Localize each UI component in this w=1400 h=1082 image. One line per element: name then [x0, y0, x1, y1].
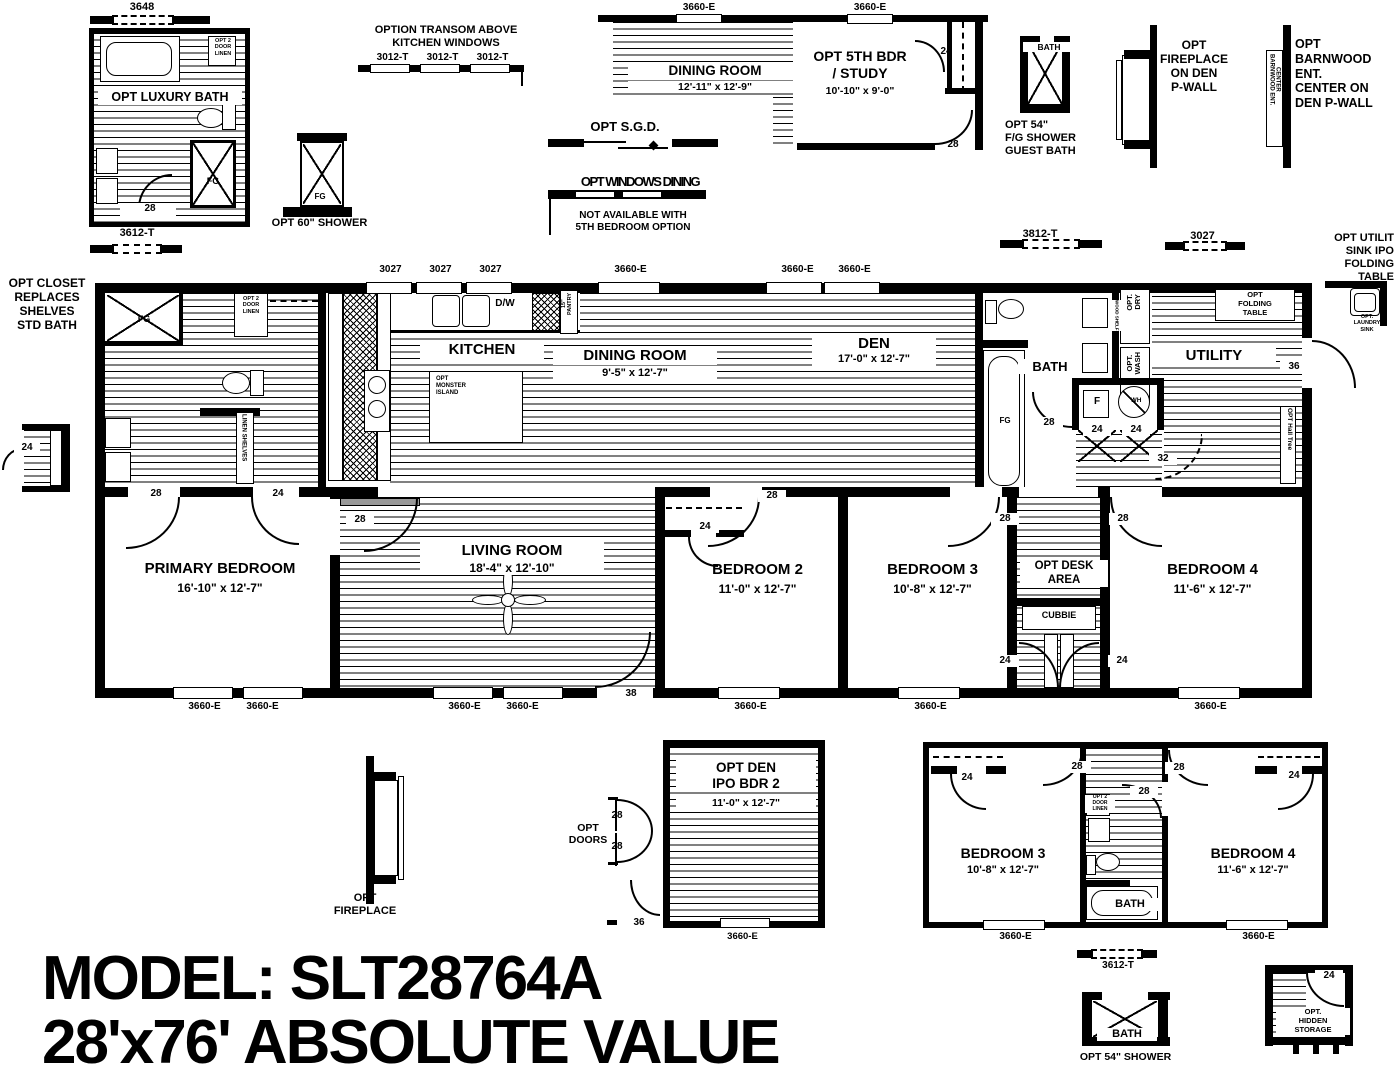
door-28-optden-2: 28	[605, 841, 629, 853]
opt-fireplace-label: OPT FIREPLACE	[315, 892, 415, 918]
opt-closet-title: OPT CLOSET REPLACES SHELVES STD BATH	[2, 276, 92, 333]
shower-wall	[1020, 104, 1070, 113]
sgd-label: OPT S.G.D.	[560, 119, 690, 134]
dim-3660e-dining: 3660-E	[598, 264, 663, 276]
closet-wall	[1157, 378, 1164, 430]
sink	[96, 148, 118, 174]
bedroom2-dims: 11'-0" x 12'-7"	[680, 582, 835, 596]
dim-3612t-bottom: 3612-T	[1078, 960, 1158, 972]
door-24-cubbie-l: 24	[991, 655, 1019, 667]
wall	[598, 15, 988, 22]
window	[983, 920, 1045, 930]
door-arc	[251, 497, 299, 545]
dim-bar	[1077, 950, 1091, 958]
leg	[1333, 1045, 1339, 1054]
barnwood-vert-label: BARNWOOD ENT. CENTER	[1268, 54, 1281, 105]
wood-shelf-vert: WOOD SHELF	[1112, 300, 1121, 331]
door-arc	[126, 497, 180, 549]
kitchen-label: KITCHEN	[420, 341, 544, 359]
opt-54-shower-label: OPT 54" SHOWER	[1068, 1051, 1183, 1063]
closet-rod	[962, 22, 966, 92]
bedroom4-dims: 11'-6" x 12'-7"	[1135, 582, 1290, 596]
window	[466, 282, 512, 294]
island-label: OPT MONSTER ISLAND	[436, 376, 490, 397]
closet-24-bed2: 24	[691, 521, 719, 533]
alt-bed3-label: BEDROOM 3	[923, 845, 1083, 862]
fireplace-bracket	[374, 772, 396, 781]
door-gap	[1110, 487, 1162, 497]
wall	[1017, 598, 1100, 606]
interior-wall	[1007, 497, 1017, 698]
wall	[983, 340, 1028, 348]
door-24-cubbie-r: 24	[1108, 655, 1136, 667]
furnace-label: F	[1085, 396, 1109, 408]
den-dims: 17'-0" x 12'-7"	[812, 353, 936, 366]
pantry	[532, 293, 560, 331]
door-28-bed2: 28	[758, 490, 786, 502]
transom-window-symbol	[112, 15, 174, 25]
alt-bath-label: BATH	[1100, 898, 1160, 911]
shower-wall	[283, 207, 352, 217]
win-3660e-pb2: 3660-E	[230, 701, 295, 713]
door-arc	[630, 880, 660, 916]
dim-3027-k1: 3027	[368, 264, 413, 276]
closet-rod	[666, 507, 742, 509]
door-24-hidden: 24	[1315, 970, 1343, 982]
closet-rod	[270, 300, 318, 302]
sgd-bar	[548, 139, 584, 147]
dim-3660e-d1: 3660-E	[664, 2, 734, 14]
win-3660e-optden: 3660-E	[710, 931, 775, 942]
dim-bar	[1000, 240, 1022, 248]
wall	[975, 20, 983, 147]
window	[847, 14, 893, 24]
wardrobe-shelf	[328, 293, 343, 481]
cubbie-label: CUBBIE	[1024, 610, 1094, 621]
door-24-bdr5: 24	[934, 46, 958, 58]
linen-shelves-vert: LINEN SHELVES	[238, 414, 248, 461]
dim-3012t-1: 3012-T	[365, 52, 420, 64]
alt-win-3660e-l: 3660-E	[983, 931, 1048, 943]
bdr5-label: OPT 5TH BDR / STUDY	[790, 48, 930, 81]
primary-bedroom-label: PRIMARY BEDROOM	[125, 560, 315, 578]
dining-opt-floor	[773, 97, 793, 147]
fireplace-den-label: OPT FIREPLACE ON DEN P-WALL	[1148, 38, 1240, 95]
utility-sink-title: OPT UTILIT SINK IPO FOLDING TABLE	[1308, 232, 1394, 284]
p-wall	[366, 756, 374, 904]
door-24-pbath: 24	[264, 488, 292, 500]
dim-bar	[162, 245, 182, 253]
closet-wall	[931, 766, 957, 774]
window	[470, 64, 510, 73]
hidden-storage-label: OPT. HIDDEN STORAGE	[1276, 1008, 1350, 1035]
door-24-util-2: 24	[1122, 424, 1150, 436]
closet-rod	[1258, 756, 1320, 758]
closet-shelf	[50, 430, 62, 486]
sgd-line	[584, 141, 626, 143]
win-3660e-b2: 3660-E	[718, 701, 783, 713]
window	[898, 687, 960, 699]
win-3660e-b4: 3660-E	[1178, 701, 1243, 713]
window	[718, 687, 780, 699]
opt-den-dims: 11'-0" x 12'-7"	[676, 797, 816, 809]
sink	[105, 418, 131, 448]
guest-bath-label: BATH	[1023, 42, 1075, 52]
door-gap	[710, 487, 762, 497]
interior-wall	[838, 497, 848, 698]
shower-wall	[1082, 992, 1102, 1000]
door-28-pbath: 28	[142, 488, 170, 500]
door-28-optden-1: 28	[605, 810, 629, 822]
sgd-bar	[672, 139, 718, 147]
door-38-living: 38	[617, 688, 645, 700]
model-title-line1: MODEL: SLT28764A	[42, 948, 601, 1010]
toilet-tank	[250, 370, 264, 396]
window	[575, 191, 615, 198]
window	[416, 282, 462, 294]
bdr5-dims: 10'-10" x 9'-0"	[790, 85, 930, 97]
sink	[1082, 343, 1108, 373]
dim-3812t: 3812-T	[1000, 228, 1080, 241]
laundry-sink-label: OPT. LAUNDRY SINK	[1342, 314, 1392, 333]
opt-luxury-bath-label: OPT LUXURY BATH	[98, 90, 242, 105]
living-room-dims: 18'-4" x 12'-10"	[420, 561, 604, 575]
closet-wall	[62, 424, 70, 492]
window	[433, 687, 493, 699]
alt-bed4-dims: 11'-6" x 12'-7"	[1173, 864, 1333, 877]
toilet-bowl	[222, 372, 250, 394]
dim-3027-k3: 3027	[468, 264, 513, 276]
interior-wall	[975, 293, 983, 493]
toilet-tank	[1086, 855, 1096, 875]
sink	[1088, 818, 1110, 842]
dim-3660e-d2: 3660-E	[835, 2, 905, 14]
fan-blade	[503, 603, 513, 635]
sink	[1082, 298, 1108, 328]
door-tick	[608, 862, 618, 865]
dim-bar	[1080, 240, 1102, 248]
guest-shower-label: OPT 54" F/G SHOWER GUEST BATH	[1005, 119, 1087, 158]
toilet-bowl	[1096, 853, 1120, 871]
alt-door28-r: 28	[1165, 762, 1193, 774]
door-28-bed4: 28	[1109, 513, 1137, 525]
closet-rod	[933, 756, 1003, 758]
fireplace-bracket	[1124, 140, 1150, 149]
burner	[368, 400, 386, 418]
leg	[1293, 1045, 1299, 1054]
dim-bar	[1143, 950, 1157, 958]
bedroom3-dims: 10'-8" x 12'-7"	[855, 582, 1010, 596]
alt-bed3-dims: 10'-8" x 12'-7"	[923, 864, 1083, 877]
dining-dims: 9'-5" x 12'-7"	[553, 367, 717, 380]
den-label: DEN	[812, 335, 936, 353]
dim-bar	[174, 16, 210, 24]
window	[173, 687, 233, 699]
fg-60-shower-label: FG	[305, 192, 335, 201]
door-gap	[950, 487, 1002, 497]
floorplan-canvas: MODEL: SLT28764A 28'x76' ABSOLUTE VALUE …	[0, 0, 1400, 1082]
alt-linen-label: OPT 2 DOOR LINEN	[1085, 795, 1115, 813]
burner	[368, 376, 386, 394]
door-36-optden: 36	[627, 917, 651, 929]
window	[1226, 920, 1288, 930]
dim-bar	[1165, 242, 1183, 250]
alt-closet24-l: 24	[955, 772, 979, 784]
door-24-util-1: 24	[1083, 424, 1111, 436]
dim-3660e-den1: 3660-E	[765, 264, 830, 276]
alt-door28-bath: 28	[1130, 786, 1158, 798]
door-gap	[1019, 487, 1098, 497]
wall-tick	[549, 199, 551, 235]
door-tick	[607, 920, 617, 925]
primary-bedroom-dims: 16'-10" x 12'-7"	[125, 581, 315, 595]
leg	[1313, 1045, 1319, 1054]
bedroom2-label: BEDROOM 2	[680, 561, 835, 579]
bath-label: BATH	[1018, 359, 1082, 374]
alt-win-3660e-r: 3660-E	[1226, 931, 1291, 943]
window	[1178, 687, 1240, 699]
fireplace-body	[374, 780, 398, 876]
closet-wall	[945, 88, 975, 94]
alt-door28-l: 28	[1063, 761, 1091, 773]
luxury-linen-label: OPT 2 DOOR LINEN	[210, 38, 236, 57]
door-32: 32	[1149, 453, 1177, 465]
win-3660e-lr1: 3660-E	[432, 701, 497, 713]
window	[243, 687, 303, 699]
door-28-luxury: 28	[136, 203, 164, 215]
wall	[1265, 965, 1273, 1046]
toilet-tank	[222, 104, 236, 130]
door-28-living-entry: 28	[346, 514, 374, 526]
door-24-closet-detail: 24	[14, 442, 40, 454]
closet-wall	[1072, 378, 1164, 385]
closet-wall	[1072, 378, 1079, 430]
alt-bed4-label: BEDROOM 4	[1173, 845, 1333, 862]
dining-label: DINING ROOM	[553, 347, 717, 365]
bathtub-inner	[106, 42, 172, 76]
dim-3612t-left: 3612-T	[97, 227, 177, 240]
dim-bar	[1227, 242, 1245, 250]
kitchen-sink	[462, 295, 490, 327]
bedroom4-label: BEDROOM 4	[1135, 561, 1290, 579]
fireplace-face	[1116, 60, 1122, 140]
dining-opt-label: DINING ROOM	[628, 63, 802, 79]
window	[503, 687, 563, 699]
dim-bar	[90, 16, 112, 24]
door-gap	[1162, 782, 1168, 816]
window	[420, 64, 460, 73]
opt-60-shower-label: OPT 60" SHOWER	[262, 217, 377, 230]
barnwood-label: OPT BARNWOOD ENT. CENTER ON DEN P-WALL	[1295, 37, 1395, 111]
closet-wall	[986, 766, 1006, 774]
fan-blade	[472, 595, 504, 605]
fan-hub	[501, 593, 515, 607]
win-3660e-b3: 3660-E	[898, 701, 963, 713]
dim-3660e-den2: 3660-E	[822, 264, 887, 276]
window	[720, 918, 770, 928]
toilet-bowl	[197, 108, 225, 128]
opt-den-label: OPT DEN IPO BDR 2	[676, 760, 816, 792]
dim-3027-float: 3027	[1165, 230, 1240, 243]
pantry-vert-label: 15" PANTRY	[562, 293, 574, 315]
win-3660e-pb1: 3660-E	[172, 701, 237, 713]
shower-wall	[297, 133, 347, 141]
dim-bar	[90, 245, 112, 253]
interior-wall	[1162, 748, 1168, 923]
closet-wall	[1255, 766, 1277, 774]
window	[824, 282, 880, 294]
primary-linen-label: OPT 2 DOOR LINEN	[235, 296, 267, 315]
dim-3027-k2: 3027	[418, 264, 463, 276]
shower-x	[1028, 43, 1062, 104]
kitchen-sink	[432, 295, 460, 327]
window	[598, 282, 660, 294]
door-28-bath: 28	[1035, 417, 1063, 429]
optwash-vert: OPT. WASH	[1126, 352, 1142, 375]
fireplace-body	[1122, 55, 1150, 145]
transom-title: OPTION TRANSOM ABOVE KITCHEN WINDOWS	[356, 24, 536, 50]
alt-closet24-r: 24	[1282, 770, 1306, 782]
windows-dining-label: OPT WINDOWS DINING	[555, 174, 725, 189]
wh-label: WH	[1124, 397, 1148, 405]
dw-label: D/W	[487, 298, 523, 310]
fg-luxury-shower-label: FG	[198, 176, 228, 187]
dim-3012t-3: 3012-T	[465, 52, 520, 64]
folding-table-label: OPT FOLDING TABLE	[1217, 291, 1293, 318]
fireplace-bracket	[1124, 50, 1150, 59]
wall	[1265, 1037, 1353, 1045]
window	[766, 282, 822, 294]
living-room-label: LIVING ROOM	[420, 542, 604, 560]
toilet-tank	[985, 300, 997, 324]
shower-x	[193, 143, 233, 205]
wall-tick	[521, 72, 523, 86]
fan-blade	[514, 595, 546, 605]
interior-wall	[318, 293, 326, 487]
dining-opt-dims: 12'-11" x 12'-9"	[628, 81, 802, 93]
desk-area-label: OPT DESK AREA	[1020, 560, 1108, 587]
door-36-utility: 36	[1280, 361, 1308, 373]
sink	[105, 452, 131, 482]
closet-wall	[665, 530, 691, 537]
door-arc	[1312, 340, 1356, 388]
optdry-vert: OPT. DRY	[1126, 294, 1142, 311]
interior-wall	[655, 497, 665, 698]
sink	[96, 178, 118, 204]
door-28-bdr5: 28	[941, 139, 965, 151]
fg-bath-tub-label: FG	[992, 416, 1018, 425]
window	[622, 191, 662, 198]
dim-3648: 3648	[102, 1, 182, 14]
laundry-sink-basin	[1354, 293, 1376, 312]
dim-3012t-2: 3012-T	[415, 52, 470, 64]
sgd-line	[618, 147, 668, 149]
hall-tree-vert: OPT Hall Tree	[1283, 408, 1294, 450]
fireplace-face	[398, 776, 404, 880]
p-wall	[1283, 25, 1291, 168]
door-28-bed3: 28	[991, 513, 1019, 525]
transom-window-symbol	[1091, 949, 1143, 959]
model-title-line2: 28'x76' ABSOLUTE VALUE	[42, 1012, 779, 1074]
utility-label: UTILITY	[1152, 347, 1276, 365]
closet-wall	[716, 530, 744, 537]
fireplace-bracket	[374, 875, 396, 884]
toilet-bowl	[998, 299, 1024, 319]
shower54-bath-label: BATH	[1097, 1028, 1157, 1041]
door-gap	[330, 499, 340, 555]
fg-primary-shower-label: FG	[130, 314, 158, 325]
win-3660e-lr2: 3660-E	[490, 701, 555, 713]
transom-window-symbol	[112, 244, 162, 254]
windows-dining-note: NOT AVAILABLE WITH 5TH BEDROOM OPTION	[553, 210, 713, 234]
dining-den-floor	[580, 293, 975, 487]
interior-wall	[1100, 497, 1110, 698]
bedroom3-label: BEDROOM 3	[855, 561, 1010, 579]
window	[370, 64, 410, 73]
